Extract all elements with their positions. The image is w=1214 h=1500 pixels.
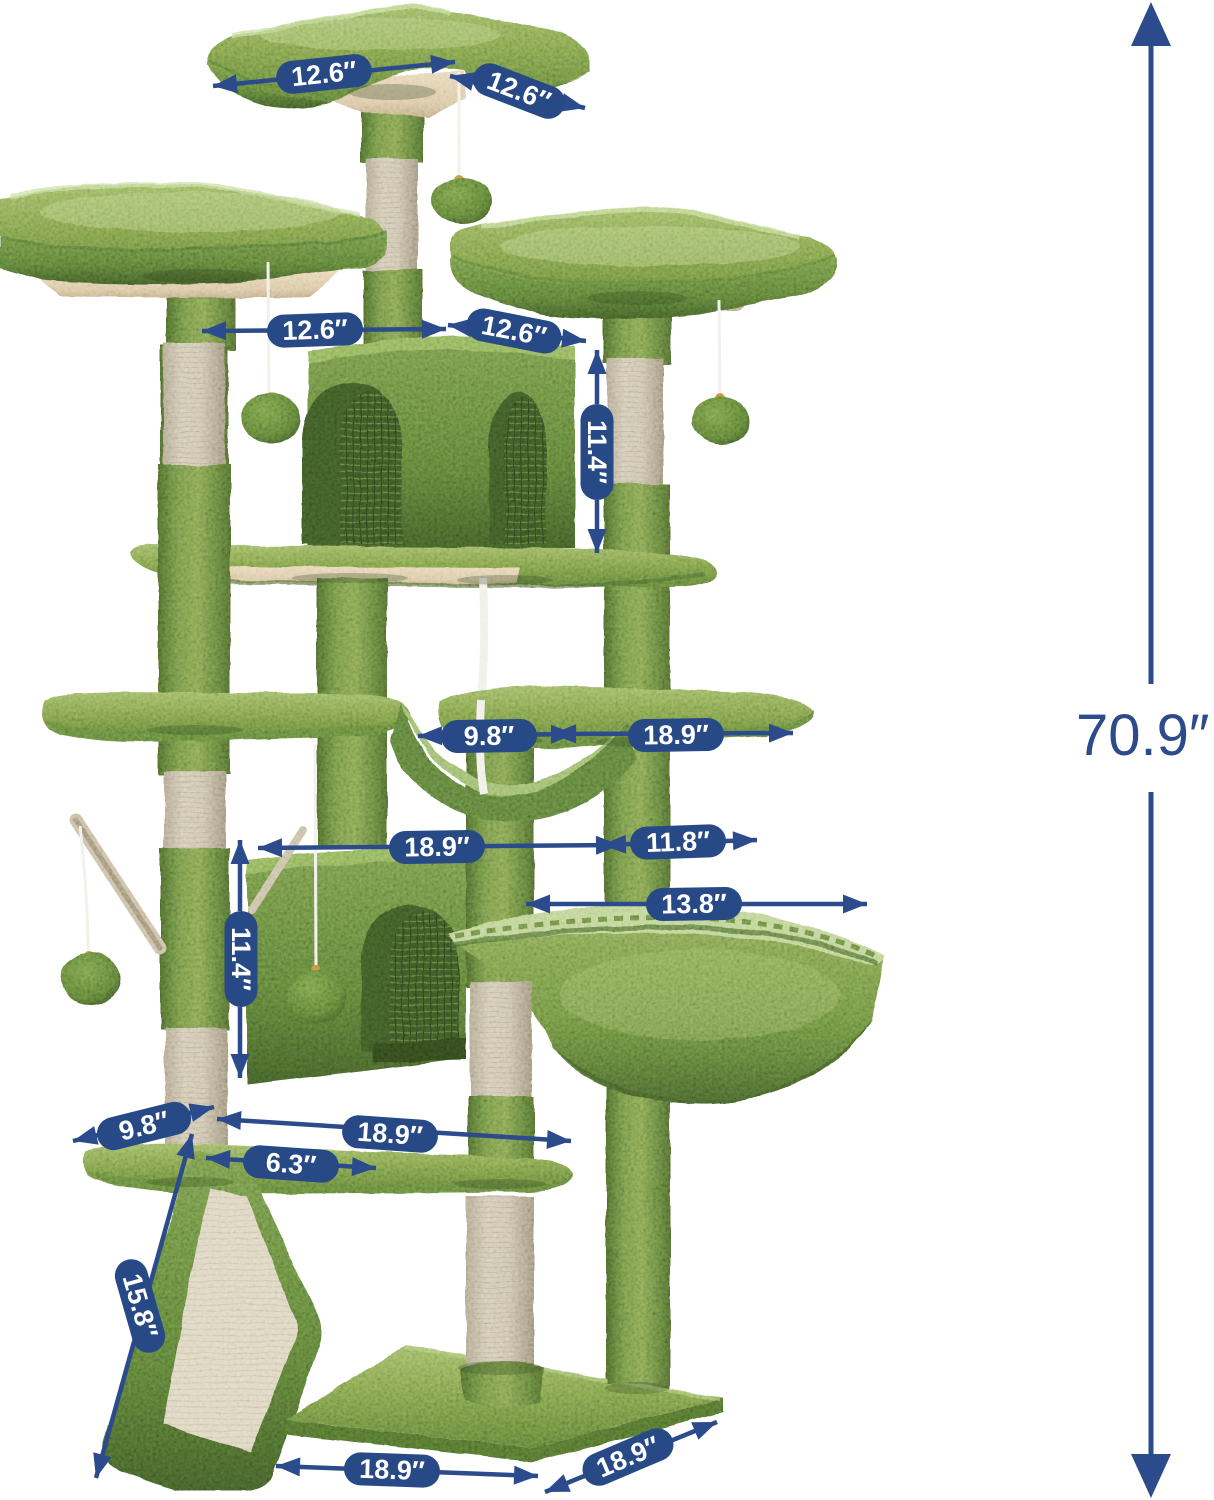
svg-text:18.9″: 18.9″ — [359, 1454, 426, 1486]
svg-text:11.8″: 11.8″ — [645, 826, 710, 858]
svg-text:11.4″: 11.4″ — [226, 927, 256, 991]
svg-text:13.8″: 13.8″ — [661, 888, 727, 919]
svg-text:18.9″: 18.9″ — [356, 1117, 423, 1151]
svg-text:9.8″: 9.8″ — [464, 720, 515, 751]
svg-text:11.4″: 11.4″ — [582, 420, 612, 484]
svg-text:18.9″: 18.9″ — [643, 719, 709, 750]
svg-text:70.9″: 70.9″ — [1076, 703, 1209, 768]
svg-text:18.9″: 18.9″ — [404, 831, 470, 862]
svg-text:6.3″: 6.3″ — [265, 1147, 318, 1180]
svg-text:12.6″: 12.6″ — [282, 314, 349, 346]
